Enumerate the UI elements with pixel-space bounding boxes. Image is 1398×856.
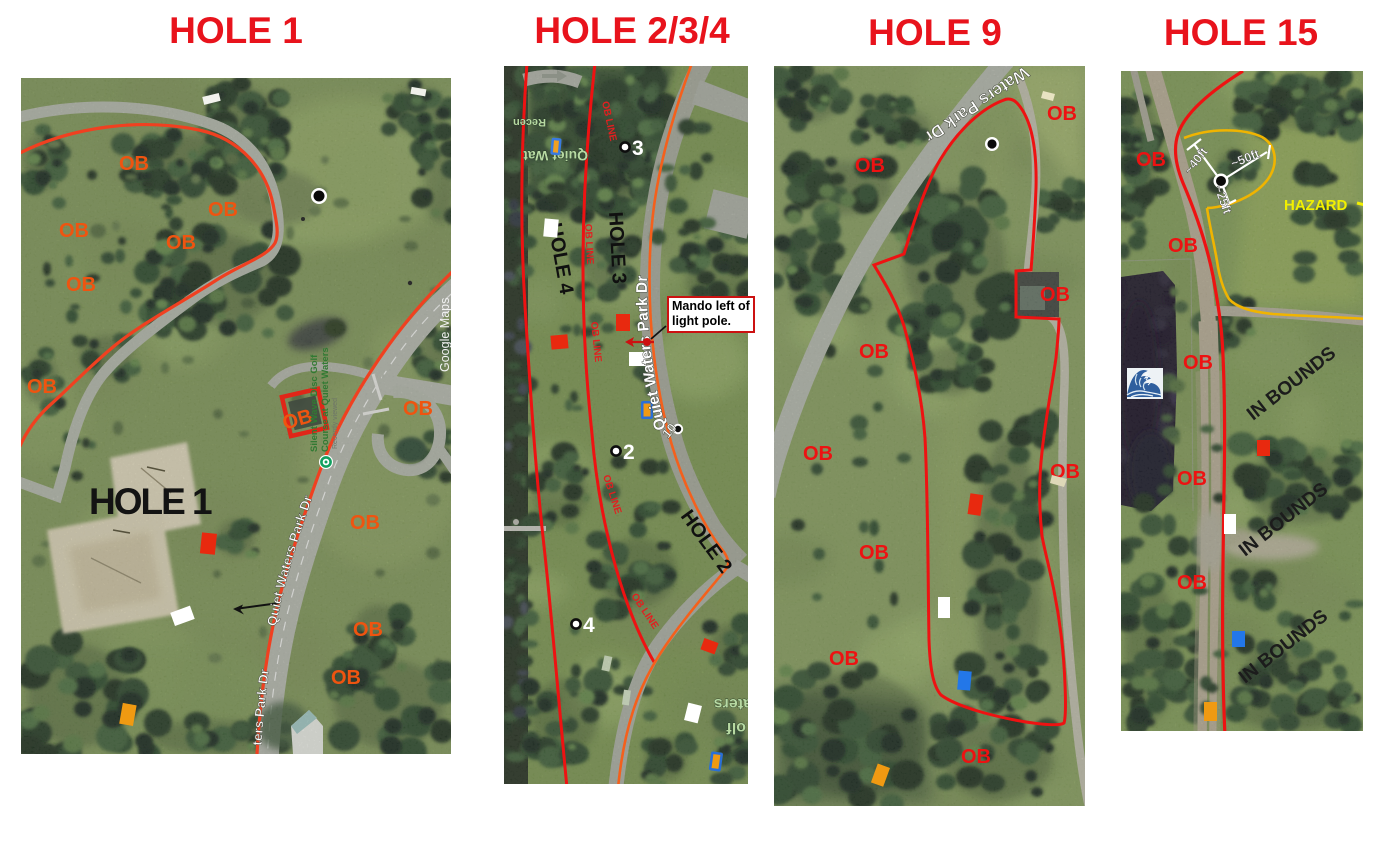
- svg-text:OB: OB: [1168, 235, 1198, 257]
- svg-text:2: 2: [623, 441, 635, 464]
- svg-text:OB: OB: [961, 746, 991, 768]
- svg-text:OB: OB: [859, 542, 889, 564]
- svg-text:OB: OB: [350, 512, 380, 534]
- svg-text:OB: OB: [331, 667, 361, 689]
- svg-text:HOLE 1: HOLE 1: [89, 481, 212, 522]
- svg-text:OB: OB: [1183, 352, 1213, 374]
- svg-text:OB: OB: [353, 619, 383, 641]
- svg-text:OB: OB: [859, 341, 889, 363]
- svg-text:OB: OB: [66, 274, 96, 296]
- svg-text:aters: aters: [714, 695, 748, 712]
- svg-text:Course at Quiet Waters: Course at Quiet Waters: [320, 347, 331, 452]
- svg-text:OB LINE: OB LINE: [582, 224, 595, 265]
- svg-text:OB: OB: [1136, 149, 1166, 171]
- svg-text:OB: OB: [855, 155, 885, 177]
- svg-text:OB: OB: [403, 398, 433, 420]
- svg-text:HOLE 3: HOLE 3: [604, 211, 630, 284]
- svg-text:OB: OB: [166, 232, 196, 254]
- svg-text:OB: OB: [59, 220, 89, 242]
- svg-text:Recen: Recen: [513, 116, 546, 128]
- svg-text:3: 3: [632, 137, 644, 160]
- svg-text:OB: OB: [803, 443, 833, 465]
- svg-text:OB: OB: [1177, 572, 1207, 594]
- svg-text:OB: OB: [119, 153, 149, 175]
- svg-text:olf: olf: [726, 719, 746, 736]
- svg-text:OB: OB: [1040, 284, 1070, 306]
- svg-text:OB: OB: [1177, 468, 1207, 490]
- svg-text:OB: OB: [27, 376, 57, 398]
- svg-text:OB: OB: [829, 648, 859, 670]
- svg-text:Recently viewed: Recently viewed: [332, 398, 339, 449]
- svg-text:OB: OB: [208, 199, 238, 221]
- svg-text:Silent Wave Disc Golf: Silent Wave Disc Golf: [309, 354, 320, 452]
- svg-text:4: 4: [583, 614, 595, 637]
- svg-text:OB: OB: [1047, 103, 1077, 125]
- svg-text:Google Maps: Google Maps: [438, 298, 451, 372]
- svg-text:HAZARD: HAZARD: [1284, 197, 1347, 214]
